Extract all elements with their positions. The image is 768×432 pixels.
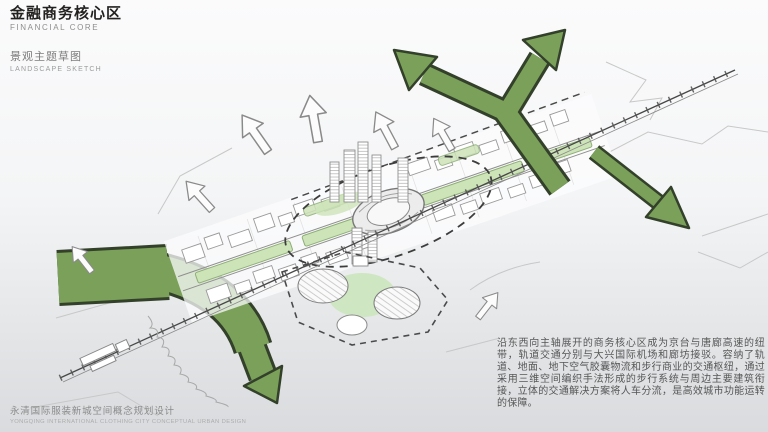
flow-arrow-icon: [297, 93, 331, 144]
page-subtitle-zh: 景观主题草图: [10, 48, 122, 64]
footer: 永清国际服装新城空间概念规划设计 YONGQING INTERNATIONAL …: [10, 403, 246, 425]
rail-station: [80, 338, 133, 374]
page-subtitle-en: LANDSCAPE SKETCH: [10, 66, 122, 73]
flow-arrow-icon: [471, 287, 505, 323]
header: 金融商务核心区 FINANCIAL CORE 景观主题草图 LANDSCAPE …: [10, 5, 122, 73]
project-name-zh: 永清国际服装新城空间概念规划设计: [10, 403, 246, 417]
page-title-en: FINANCIAL CORE: [10, 23, 122, 32]
slide: 金融商务核心区 FINANCIAL CORE 景观主题草图 LANDSCAPE …: [0, 0, 768, 432]
flow-arrow-icon: [178, 174, 220, 217]
page-title-zh: 金融商务核心区: [10, 5, 122, 22]
description-paragraph: 沿东西向主轴展开的商务核心区成为京台与唐廊高速的纽带，轨道交通分别与大兴国际机场…: [497, 338, 765, 410]
project-name-en: YONGQING INTERNATIONAL CLOTHING CITY CON…: [10, 419, 246, 425]
flow-arrow-icon: [366, 107, 405, 154]
shoreline: [148, 316, 228, 407]
green-corridor-east: [594, 152, 689, 228]
flow-arrow-icon: [232, 108, 279, 159]
